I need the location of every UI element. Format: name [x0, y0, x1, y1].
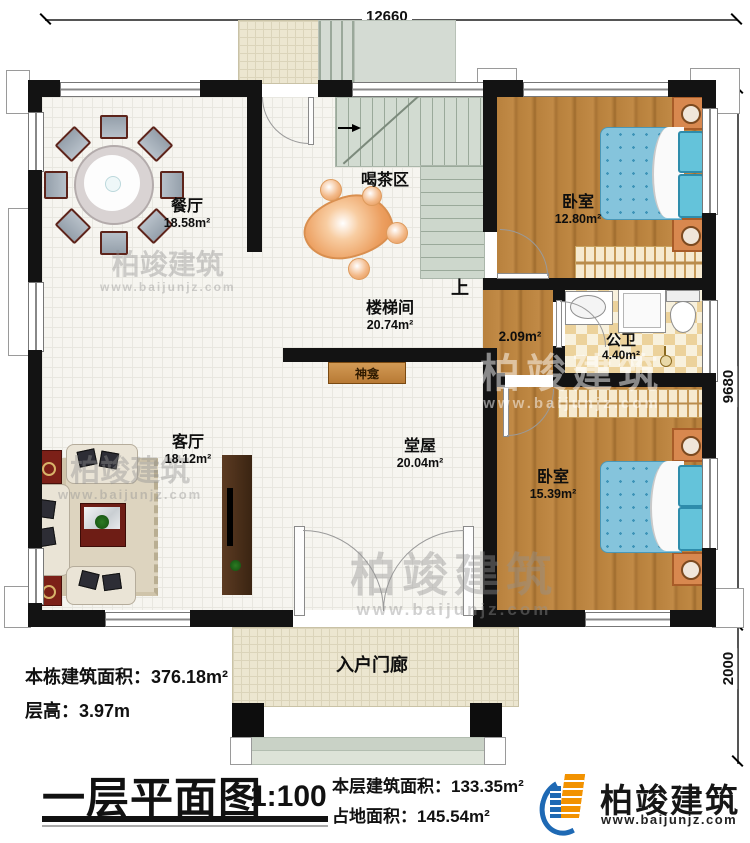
- wall-segment: [670, 610, 716, 627]
- window: [702, 108, 718, 215]
- floor-drain-stem: [664, 346, 666, 355]
- brand-logo-icon: [540, 770, 594, 832]
- entry-steps: [250, 750, 486, 765]
- window: [28, 112, 44, 172]
- stair-upper-flight: [335, 97, 485, 167]
- window: [60, 82, 202, 97]
- window: [28, 282, 44, 352]
- room-label-hall: 堂屋 20.04m²: [397, 438, 444, 471]
- bed-top-pillow: [678, 131, 704, 173]
- tv-plant: [230, 560, 241, 571]
- tea-stone: [320, 179, 342, 201]
- shower-inner: [623, 293, 661, 328]
- wall-segment: [200, 80, 252, 97]
- shrine-cabinet: 神龛: [328, 362, 406, 384]
- window: [585, 612, 672, 627]
- entry-door-leaf: [463, 526, 474, 616]
- wall-segment: [497, 373, 505, 387]
- window: [352, 82, 485, 97]
- wardrobe-bottom: [558, 389, 704, 418]
- window-sill: [4, 586, 31, 628]
- dining-table-center: [105, 176, 121, 192]
- window: [28, 548, 44, 605]
- wall-segment: [247, 80, 262, 252]
- wall-segment: [702, 380, 716, 458]
- tv-screen: [227, 488, 233, 546]
- wall-segment: [702, 80, 716, 108]
- dimension-right-height: 9680: [720, 366, 737, 407]
- bed-top-pillow: [678, 174, 704, 218]
- window: [105, 612, 192, 627]
- corridor-area-label: 2.09m²: [499, 329, 542, 345]
- tea-stone: [348, 258, 370, 280]
- wall-segment: [28, 350, 42, 548]
- window: [702, 300, 718, 382]
- stair-arrow-line: [338, 127, 354, 129]
- room-label-entry-porch: 入户门廊: [336, 655, 408, 676]
- floor-plan-sheet: 12660 9680 2000: [0, 0, 750, 843]
- dimension-porch-depth: 2000: [720, 648, 737, 689]
- porch-column: [470, 703, 502, 737]
- floor-drain: [660, 355, 672, 367]
- sofa-pillow: [99, 451, 120, 470]
- wall-segment: [190, 610, 293, 627]
- porch-step-side: [484, 737, 506, 765]
- window: [523, 82, 670, 97]
- dining-chair: [100, 231, 128, 255]
- wall-segment: [483, 362, 497, 610]
- stair-lower-flight: [420, 165, 485, 279]
- porch-column: [232, 703, 264, 737]
- title-underline: [42, 816, 328, 822]
- wall-segment: [283, 348, 497, 362]
- sheet-scale: 1:100: [250, 780, 327, 814]
- sofa-bottom: [66, 566, 136, 605]
- coffee-table-plant: [95, 515, 109, 529]
- room-label-living: 客厅 18.12m²: [165, 434, 212, 467]
- building-total-area-note: 本栋建筑面积：376.18m²: [25, 663, 228, 689]
- dining-chair: [44, 171, 68, 199]
- back-porch-floor: [238, 20, 320, 84]
- back-landing: [354, 20, 456, 84]
- dining-chair: [100, 115, 128, 139]
- wall-segment: [28, 610, 105, 627]
- wall-segment: [483, 278, 716, 290]
- title-underline-thin: [42, 825, 328, 827]
- window: [702, 458, 718, 550]
- room-label-bathroom: 公卫 4.40m²: [602, 332, 640, 363]
- wall-segment: [28, 170, 42, 282]
- wall-segment: [318, 80, 352, 97]
- shrine-label: 神龛: [355, 365, 379, 382]
- sofa-pillow: [102, 573, 122, 591]
- wall-segment: [473, 610, 585, 627]
- bed-bottom-pillow: [678, 465, 704, 507]
- wall-segment: [483, 80, 497, 232]
- dimension-line-right-porch: [737, 627, 739, 764]
- dimension-line-right-main: [737, 85, 739, 627]
- wall-segment: [28, 80, 42, 112]
- back-steps: [318, 20, 356, 84]
- logo-building-blue: [550, 786, 561, 818]
- bed-bottom-pillow: [678, 507, 704, 551]
- floor-area-note: 本层建筑面积：133.35m²: [332, 772, 524, 797]
- floor-height-note: 层高：3.97m: [25, 697, 130, 723]
- window-sill: [712, 588, 744, 628]
- porch-step-side: [230, 737, 252, 765]
- window-sill: [6, 70, 30, 114]
- wall-segment: [553, 373, 716, 387]
- room-label-bedroom-bottom: 卧室 15.39m²: [530, 469, 577, 502]
- tea-stone: [386, 222, 408, 244]
- room-label-bedroom-top: 卧室 12.80m²: [555, 194, 602, 227]
- room-label-stair-hall: 楼梯间 20.74m²: [366, 300, 414, 333]
- room-label-tea-area: 喝茶区: [361, 172, 409, 190]
- stairs-up-label: 上: [451, 278, 469, 299]
- footprint-area-note: 占地面积：145.54m²: [332, 802, 490, 827]
- room-label-dining: 餐厅 18.58m²: [164, 198, 211, 231]
- dining-chair: [160, 171, 184, 199]
- brand-url: www.baijunjz.com: [601, 812, 737, 827]
